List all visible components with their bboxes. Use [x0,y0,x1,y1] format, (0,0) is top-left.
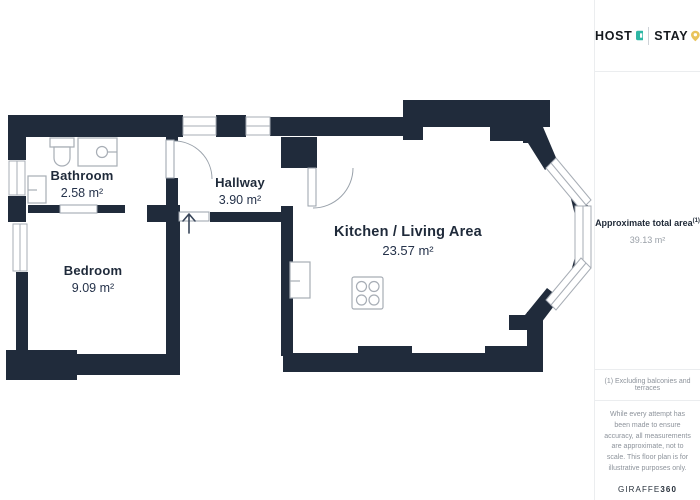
room-label-bedroom: Bedroom 9.09 m² [64,263,122,295]
bay-window [546,158,591,310]
stay-pin-icon [691,30,700,42]
room-name: Hallway [215,175,265,190]
room-label-kitchen-living: Kitchen / Living Area 23.57 m² [334,224,482,258]
logo-divider [648,27,649,45]
sink-icon [78,138,117,166]
window [246,117,270,135]
giraffe360-credit: GIRAFFE360 [595,485,700,494]
room-area: 2.58 m² [51,186,114,200]
host-door-icon [636,30,644,41]
brand-host-text: HOST [595,29,633,43]
radiator-icon [290,262,310,298]
floorplan-document: Bathroom 2.58 m² Hallway 3.90 m² Bedroom… [0,0,700,500]
door-swing-arc [174,141,212,179]
sliding-door-leaf [60,205,97,213]
room-area: 9.09 m² [64,281,122,295]
disclaimer: While every attempt has been made to ens… [595,401,700,475]
room-label-hallway: Hallway 3.90 m² [215,175,265,207]
floor-plan-drawing [0,0,594,500]
room-area: 3.90 m² [215,193,265,207]
radiator-icon [28,176,46,203]
room-area: 23.57 m² [334,243,482,258]
room-name: Bathroom [51,168,114,183]
room-label-bathroom: Bathroom 2.58 m² [51,168,114,200]
door-swing-arc [313,168,353,208]
door-leaf [308,168,316,206]
window [9,161,25,195]
hob-icon [352,277,383,309]
sidebar-footer: (1) Excluding balconies and terraces Whi… [595,369,700,494]
total-area-value: 39.13 m² [595,235,700,245]
window [183,117,216,135]
toilet-icon [50,138,74,166]
door-leaf [166,140,174,178]
total-area-label: Approximate total area(1) [595,218,700,228]
brand-stay-text: STAY [654,29,688,43]
brand-logo: HOST STAY [595,0,700,72]
room-name: Kitchen / Living Area [334,224,482,240]
footnote: (1) Excluding balconies and terraces [595,370,700,400]
info-sidebar: HOST STAY Approximate total area(1) 39.1… [594,0,700,500]
total-area-block: Approximate total area(1) 39.13 m² [595,218,700,245]
room-name: Bedroom [64,263,122,278]
window [13,224,27,271]
footnote-reference: (1) [693,218,700,224]
floor-plan: Bathroom 2.58 m² Hallway 3.90 m² Bedroom… [0,0,594,500]
